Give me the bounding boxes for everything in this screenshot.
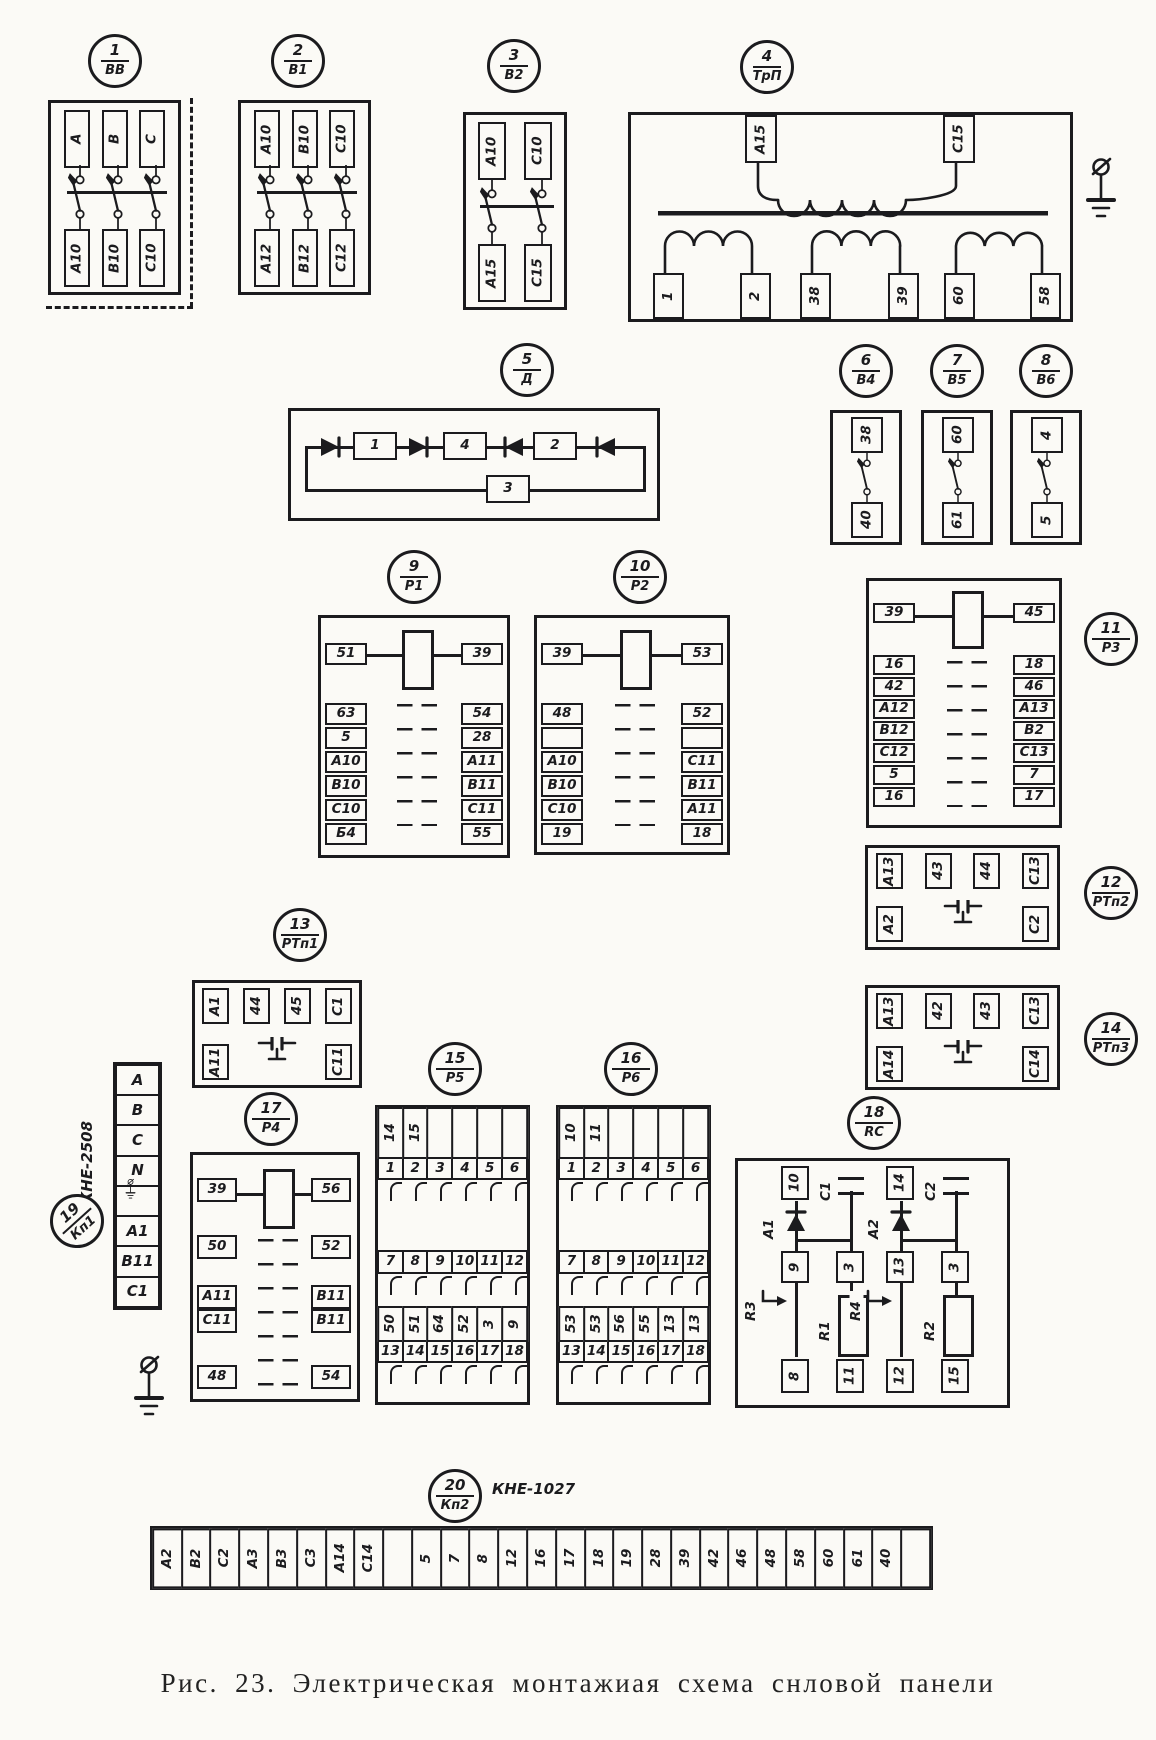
terminal: В12 [873,721,915,741]
dashed-boundary-line [46,306,193,309]
p5-contacts [378,1179,527,1213]
knife-switch-icon [252,165,288,235]
badge-20: 20Кп2 [428,1469,482,1523]
terminal: 14 [377,1107,404,1159]
terminal: 10 [558,1107,585,1159]
terminal: 6 [682,1156,709,1180]
terminal: 12 [682,1250,709,1274]
terminal: 8 [468,1528,499,1588]
p2-left-terminals: 3948А10В10С1019 [541,643,583,845]
transformer-trp-block: А15 С15 1 2 38 39 60 58 [628,112,1073,322]
badge-19: 19Кп1 [39,1183,115,1259]
badge-16: 16Р6 [604,1042,658,1096]
thermal-relay-ptp1-block: А14445С1 А11С11 [192,980,362,1088]
terminal: 18 [681,823,723,845]
terminal: 52 [311,1235,351,1259]
terminal: 60 [944,273,975,319]
badge-tag: ТрП [752,68,781,85]
contact-ladder [947,661,987,807]
terminal: 4 [1031,417,1063,453]
terminal: В [115,1094,160,1127]
terminal: 5 [411,1528,442,1588]
kp1-model-label: КНЕ-2508 [80,1084,95,1204]
terminal: С11 [461,799,503,821]
ptp3-bottom-terminals: А14С14 [876,1046,1049,1082]
earth-ground-icon [1084,156,1118,228]
terminal: 2 [740,273,771,319]
badge-tag: RC [864,1124,884,1141]
terminal: 39 [873,603,915,623]
terminal: В10 [102,229,128,287]
terminal: В11 [681,775,723,797]
terminal: 3 [476,1306,503,1342]
terminal: С14 [353,1528,384,1588]
terminal: С3 [296,1528,327,1588]
badge-2: 2В1 [271,34,325,88]
terminal: N [115,1155,160,1188]
badge-tag: Д [521,371,533,388]
terminal: 9 [781,1251,809,1283]
terminal: 50 [377,1306,404,1342]
badge-number: 4 [753,49,781,68]
resistor-icon [943,1295,974,1357]
terminal: 9 [607,1250,634,1274]
terminal: 16 [873,655,915,675]
terminal: С11 [325,1044,352,1080]
terminal: В10 [541,775,583,797]
wire [305,489,646,492]
terminal: 13 [886,1251,914,1283]
ground-icon [124,1184,146,1212]
badge-15: 15Р5 [428,1042,482,1096]
badge-number: 11 [1092,621,1131,640]
wire [643,446,646,491]
badge-tag: В5 [948,372,967,389]
terminal: 3 [836,1251,864,1283]
terminal: 11 [657,1250,684,1274]
terminal: А2 [876,906,903,942]
p5-row-2: 789101112 [378,1251,527,1273]
terminal: А11 [202,1044,229,1080]
terminal: В2 [1013,721,1055,741]
p5-row-top: 1415 [378,1108,527,1158]
terminal: С10 [524,122,552,180]
wire [900,1239,956,1242]
capacitor-icon [838,1177,864,1195]
terminal: А2 [152,1528,183,1588]
terminal: С2 [1022,906,1049,942]
terminal: А13 [876,993,903,1029]
terminal: А11 [197,1285,237,1309]
p2-right-terminals: 5352С11В11А1118 [681,643,723,845]
terminal: 58 [785,1528,816,1588]
terminal: А12 [254,229,280,287]
switch-v2-block: А10С10 А15С15 [463,112,567,310]
diode-icon [407,436,433,458]
p6-contacts [559,1179,708,1213]
terminal: 48 [756,1528,787,1588]
terminal: А14 [876,1046,903,1082]
relay-coil [263,1169,295,1229]
switch-v1-block: А10В10С10 А12В12С12 [238,100,371,295]
resistor-label: R2 [924,1301,938,1341]
bent-arrow-icon [865,1289,893,1311]
terminal: 51 [402,1306,429,1342]
knife-switch-icon [328,165,364,235]
relay-p2-block: 3948А10В10С1019 5352С11В11А1118 [534,615,730,855]
terminal: 54 [461,703,503,725]
terminal: 40 [871,1528,902,1588]
terminal: С [139,110,165,168]
ptp1-top-terminals: А14445С1 [202,988,352,1024]
badge-17: 17Р4 [244,1092,298,1146]
terminal: 18 [501,1339,528,1363]
switch-linkage-bar [480,205,554,208]
terminal: С15 [943,115,975,163]
terminal: 63 [325,703,367,725]
terminal: 17 [555,1528,586,1588]
knife-switch-icon [940,451,976,509]
thermal-relay-ptp3-block: А134243С13 А14С14 [865,985,1060,1090]
p4-right-terminals: 5652В11В1154 [311,1178,353,1389]
v2-bottom-terminals: А15С15 [478,244,552,302]
badge-tag: Р5 [446,1070,465,1087]
terminal: А11 [681,799,723,821]
terminal: С10 [325,799,367,821]
diode-box: 1 [353,432,397,460]
badge-number: 14 [1092,1021,1131,1040]
badge-number: 9 [400,559,428,578]
terminal: 18 [682,1339,709,1363]
terminal: 19 [612,1528,643,1588]
p6-row-top: 1011 [559,1108,708,1158]
relay-p6-block: 1011 123456 789101112 535356551313 13141… [556,1105,711,1405]
terminal: 2 [402,1156,429,1180]
terminal [681,727,723,749]
cap-label: С1 [820,1171,834,1201]
terminal: 53 [681,643,723,665]
switch-v6-block: 4 5 [1010,410,1082,545]
relay-p1-block: 51635А10В10С10Б4 395428А11В11С1155 [318,615,510,858]
terminal: 15 [607,1339,634,1363]
badge-number: 6 [852,353,880,372]
badge-number: 12 [1092,875,1131,894]
terminal: 3 [426,1156,453,1180]
terminal: 4 [451,1156,478,1180]
terminal: 19 [541,823,583,845]
terminal: 5 [325,727,367,749]
terminal: 10 [632,1250,659,1274]
badge-number: 5 [513,352,541,371]
terminal: 44 [973,853,1000,889]
p6-row-2: 789101112 [559,1251,708,1273]
terminal: 3 [941,1251,969,1283]
badge-tag: РТп1 [282,936,318,953]
terminal: 52 [451,1306,478,1342]
terminal: С10 [139,229,165,287]
terminal: 5 [657,1156,684,1180]
v2-top-terminals: А10С10 [478,122,552,180]
p5-row-1: 123456 [378,1158,527,1180]
ptp3-top-terminals: А134243С13 [876,993,1049,1029]
terminal: 38 [800,273,831,319]
terminal: 64 [426,1306,453,1342]
terminal: 2 [583,1156,610,1180]
terminal [900,1528,931,1588]
terminal: 3 [607,1156,634,1180]
badge-number: 2 [284,43,312,62]
relay-p3-block: 391642А12В12С12516 451846А13В2С13717 [866,578,1062,828]
terminal: 38 [851,417,883,453]
knife-switch-icon [849,451,885,509]
relay-p5-block: 1415 123456 789101112 5051645239 1314151… [375,1105,530,1405]
badge-tag: РТп2 [1093,894,1129,911]
knife-switch-icon [524,179,560,249]
badge-number: 3 [500,48,528,67]
terminal: В2 [181,1528,212,1588]
kp2-model-label: КНЕ-1027 [492,1482,575,1497]
terminal: А3 [238,1528,269,1588]
p6-contacts [559,1273,708,1307]
spacer [559,1213,708,1251]
badge-number: 18 [855,1105,894,1124]
diode-box: 2 [533,432,577,460]
knife-switch-icon [62,165,98,235]
terminal: 7 [1013,765,1055,785]
terminal: 4 [632,1156,659,1180]
terminal: 16 [632,1339,659,1363]
terminal: 7 [377,1250,404,1274]
terminal: В10 [292,110,318,168]
badge-7: 7В5 [930,344,984,398]
terminal: 50 [197,1235,237,1259]
badge-tag: В2 [505,67,524,84]
terminal-strip-kp2: А2В2С2А3В3С3А14С145781216171819283942464… [150,1526,933,1590]
badge-8: 8В6 [1019,344,1073,398]
terminal: 5 [476,1156,503,1180]
terminal: 8 [402,1250,429,1274]
badge-tag: Р1 [405,578,424,595]
terminal: 61 [843,1528,874,1588]
terminal: 1 [377,1156,404,1180]
terminal: 15 [402,1107,429,1159]
ptp2-bottom-terminals: А2С2 [876,906,1049,942]
terminal: 12 [497,1528,528,1588]
diode-unit-block: 1 4 2 3 [288,408,660,521]
terminal: С [115,1124,160,1157]
p6-contacts [559,1362,708,1396]
spacer [378,1213,527,1251]
badge-9: 9Р1 [387,550,441,604]
terminal: 28 [461,727,503,749]
terminal: 60 [814,1528,845,1588]
terminal: 44 [243,988,270,1024]
badge-18: 18RC [847,1096,901,1150]
diode-icon [890,1208,912,1234]
terminal: А10 [254,110,280,168]
badge-13: 13РТп1 [273,908,327,962]
terminal: 43 [973,993,1000,1029]
terminal: С12 [873,743,915,763]
terminal: 28 [641,1528,672,1588]
resistor-arrow-label: R4 [850,1291,864,1321]
terminal: В11 [461,775,503,797]
terminal [426,1107,453,1159]
terminal: 13 [682,1306,709,1342]
terminal: 14 [583,1339,610,1363]
terminal: 42 [873,677,915,697]
diode-icon [499,436,525,458]
terminal: 48 [541,703,583,725]
ptp2-top-terminals: А134344С13 [876,853,1049,889]
capacitor-icon [943,1177,969,1195]
badge-12: 12РТп2 [1084,866,1138,920]
badge-1: 1ВВ [88,34,142,88]
terminal [657,1107,684,1159]
badge-number: 1 [101,43,129,62]
terminal: А14 [325,1528,356,1588]
terminal: А10 [541,751,583,773]
terminal: А13 [876,853,903,889]
terminal: В11 [115,1245,160,1278]
terminal: 10 [451,1250,478,1274]
terminal: С10 [329,110,355,168]
terminal: 39 [670,1528,701,1588]
terminal: 11 [583,1107,610,1159]
terminal: А11 [461,751,503,773]
badge-tag: Р2 [631,578,650,595]
terminal: 13 [558,1339,585,1363]
terminal: 6 [501,1156,528,1180]
relay-coil [402,630,434,690]
knife-switch-icon [474,179,510,249]
terminal: 14 [886,1166,914,1200]
contact-ladder [258,1239,298,1391]
badge-number: 17 [252,1101,291,1120]
terminal: С11 [197,1309,237,1333]
terminal: 7 [558,1250,585,1274]
knife-switch-icon [290,165,326,235]
diode-icon [591,436,617,458]
terminal: А [64,110,90,168]
knife-switch-icon [138,165,174,235]
p5-row-4: 131415161718 [378,1341,527,1363]
terminal: Б4 [325,823,367,845]
terminal [541,727,583,749]
p5-row-3: 5051645239 [378,1307,527,1341]
terminal: С10 [541,799,583,821]
contact-ladder [615,704,655,826]
terminal: 11 [476,1250,503,1274]
badge-number: 15 [436,1051,475,1070]
ptp1-bottom-terminals: А11С11 [202,1044,352,1080]
terminal: 55 [461,823,503,845]
terminal: 54 [311,1365,351,1389]
terminal: 8 [583,1250,610,1274]
vv-top-terminals: АВС [64,110,165,168]
terminal: 16 [873,787,915,807]
badge-number: 13 [281,917,320,936]
badge-14: 14РТп3 [1084,1012,1138,1066]
terminal: 18 [1013,655,1055,675]
p3-left-terminals: 391642А12В12С12516 [873,603,915,807]
terminal: 61 [942,502,974,538]
terminal: А10 [325,751,367,773]
terminal: А12 [873,699,915,719]
p1-right-terminals: 395428А11В11С1155 [461,643,503,845]
terminal: А1 [115,1215,160,1248]
p5-contacts [378,1362,527,1396]
diode-icon [785,1208,807,1234]
terminal: 52 [681,703,723,725]
terminal: 43 [925,853,952,889]
terminal [476,1107,503,1159]
p6-row-4: 131415161718 [559,1341,708,1363]
terminal: 51 [325,643,367,665]
terminal: 9 [426,1250,453,1274]
terminal: С2 [209,1528,240,1588]
badge-tag: Р6 [622,1070,641,1087]
terminal: С13 [1022,993,1049,1029]
terminal: С11 [681,751,723,773]
terminal: А15 [745,115,777,163]
badge-number: 8 [1032,353,1060,372]
wire [305,446,308,491]
terminal: В11 [311,1309,351,1333]
schematic-page: 1ВВ 2В1 3В2 4ТрП 5Д 6В4 7В5 8В6 9Р1 10Р2… [0,0,1156,1740]
terminal: 7 [440,1528,471,1588]
terminal: А10 [478,122,506,180]
terminal: 48 [197,1365,237,1389]
dashed-boundary-line [190,98,193,308]
terminal: 13 [377,1339,404,1363]
knife-switch-icon [1029,451,1065,509]
terminal: 56 [311,1178,351,1202]
terminal: 39 [541,643,583,665]
badge-tag: В6 [1037,372,1056,389]
terminal: С15 [524,244,552,302]
terminal: 45 [284,988,311,1024]
terminal: 15 [941,1359,969,1393]
badge-tag: РТп3 [1093,1040,1129,1057]
diode-box: 3 [486,475,530,503]
badge-3: 3В2 [487,39,541,93]
terminal: А10 [64,229,90,287]
diode-label: А2 [868,1209,882,1239]
terminal: 56 [607,1306,634,1342]
badge-tag: Р4 [262,1120,281,1137]
terminal: 58 [1030,273,1061,319]
badge-10: 10Р2 [613,550,667,604]
terminal: А1 [202,988,229,1024]
terminal: 10 [781,1166,809,1200]
terminal: 14 [402,1339,429,1363]
terminal: 12 [886,1359,914,1393]
transformer-windings-icon [628,112,1073,322]
terminal: С1 [325,988,352,1024]
terminal: 1 [653,273,684,319]
terminal [682,1107,709,1159]
terminal: А [115,1064,160,1097]
terminal: С1 [115,1276,160,1309]
resistor-label: R1 [819,1301,833,1341]
terminal: С12 [329,229,355,287]
badge-tag: В4 [857,372,876,389]
terminal: 13 [657,1306,684,1342]
v1-bottom-terminals: А12В12С12 [254,229,355,287]
p6-row-1: 123456 [559,1158,708,1180]
switch-linkage-bar [67,191,167,194]
